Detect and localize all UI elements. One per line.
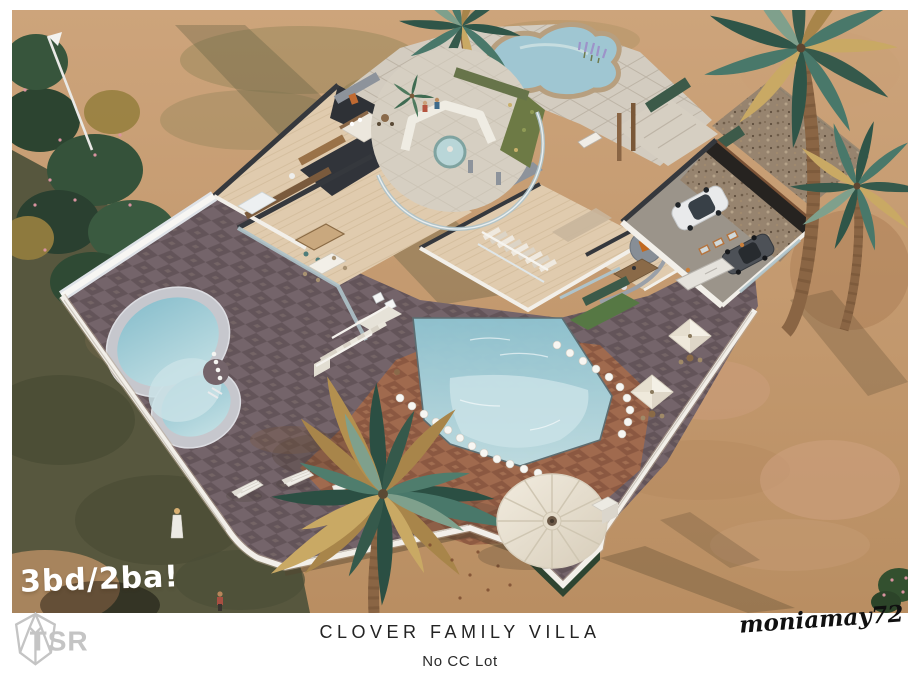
bed-bath-badge: 3bd/2ba! — [19, 559, 179, 600]
villa-aerial-photo: 3bd/2ba! — [12, 10, 908, 613]
poster-subtitle: No CC Lot — [0, 653, 920, 670]
